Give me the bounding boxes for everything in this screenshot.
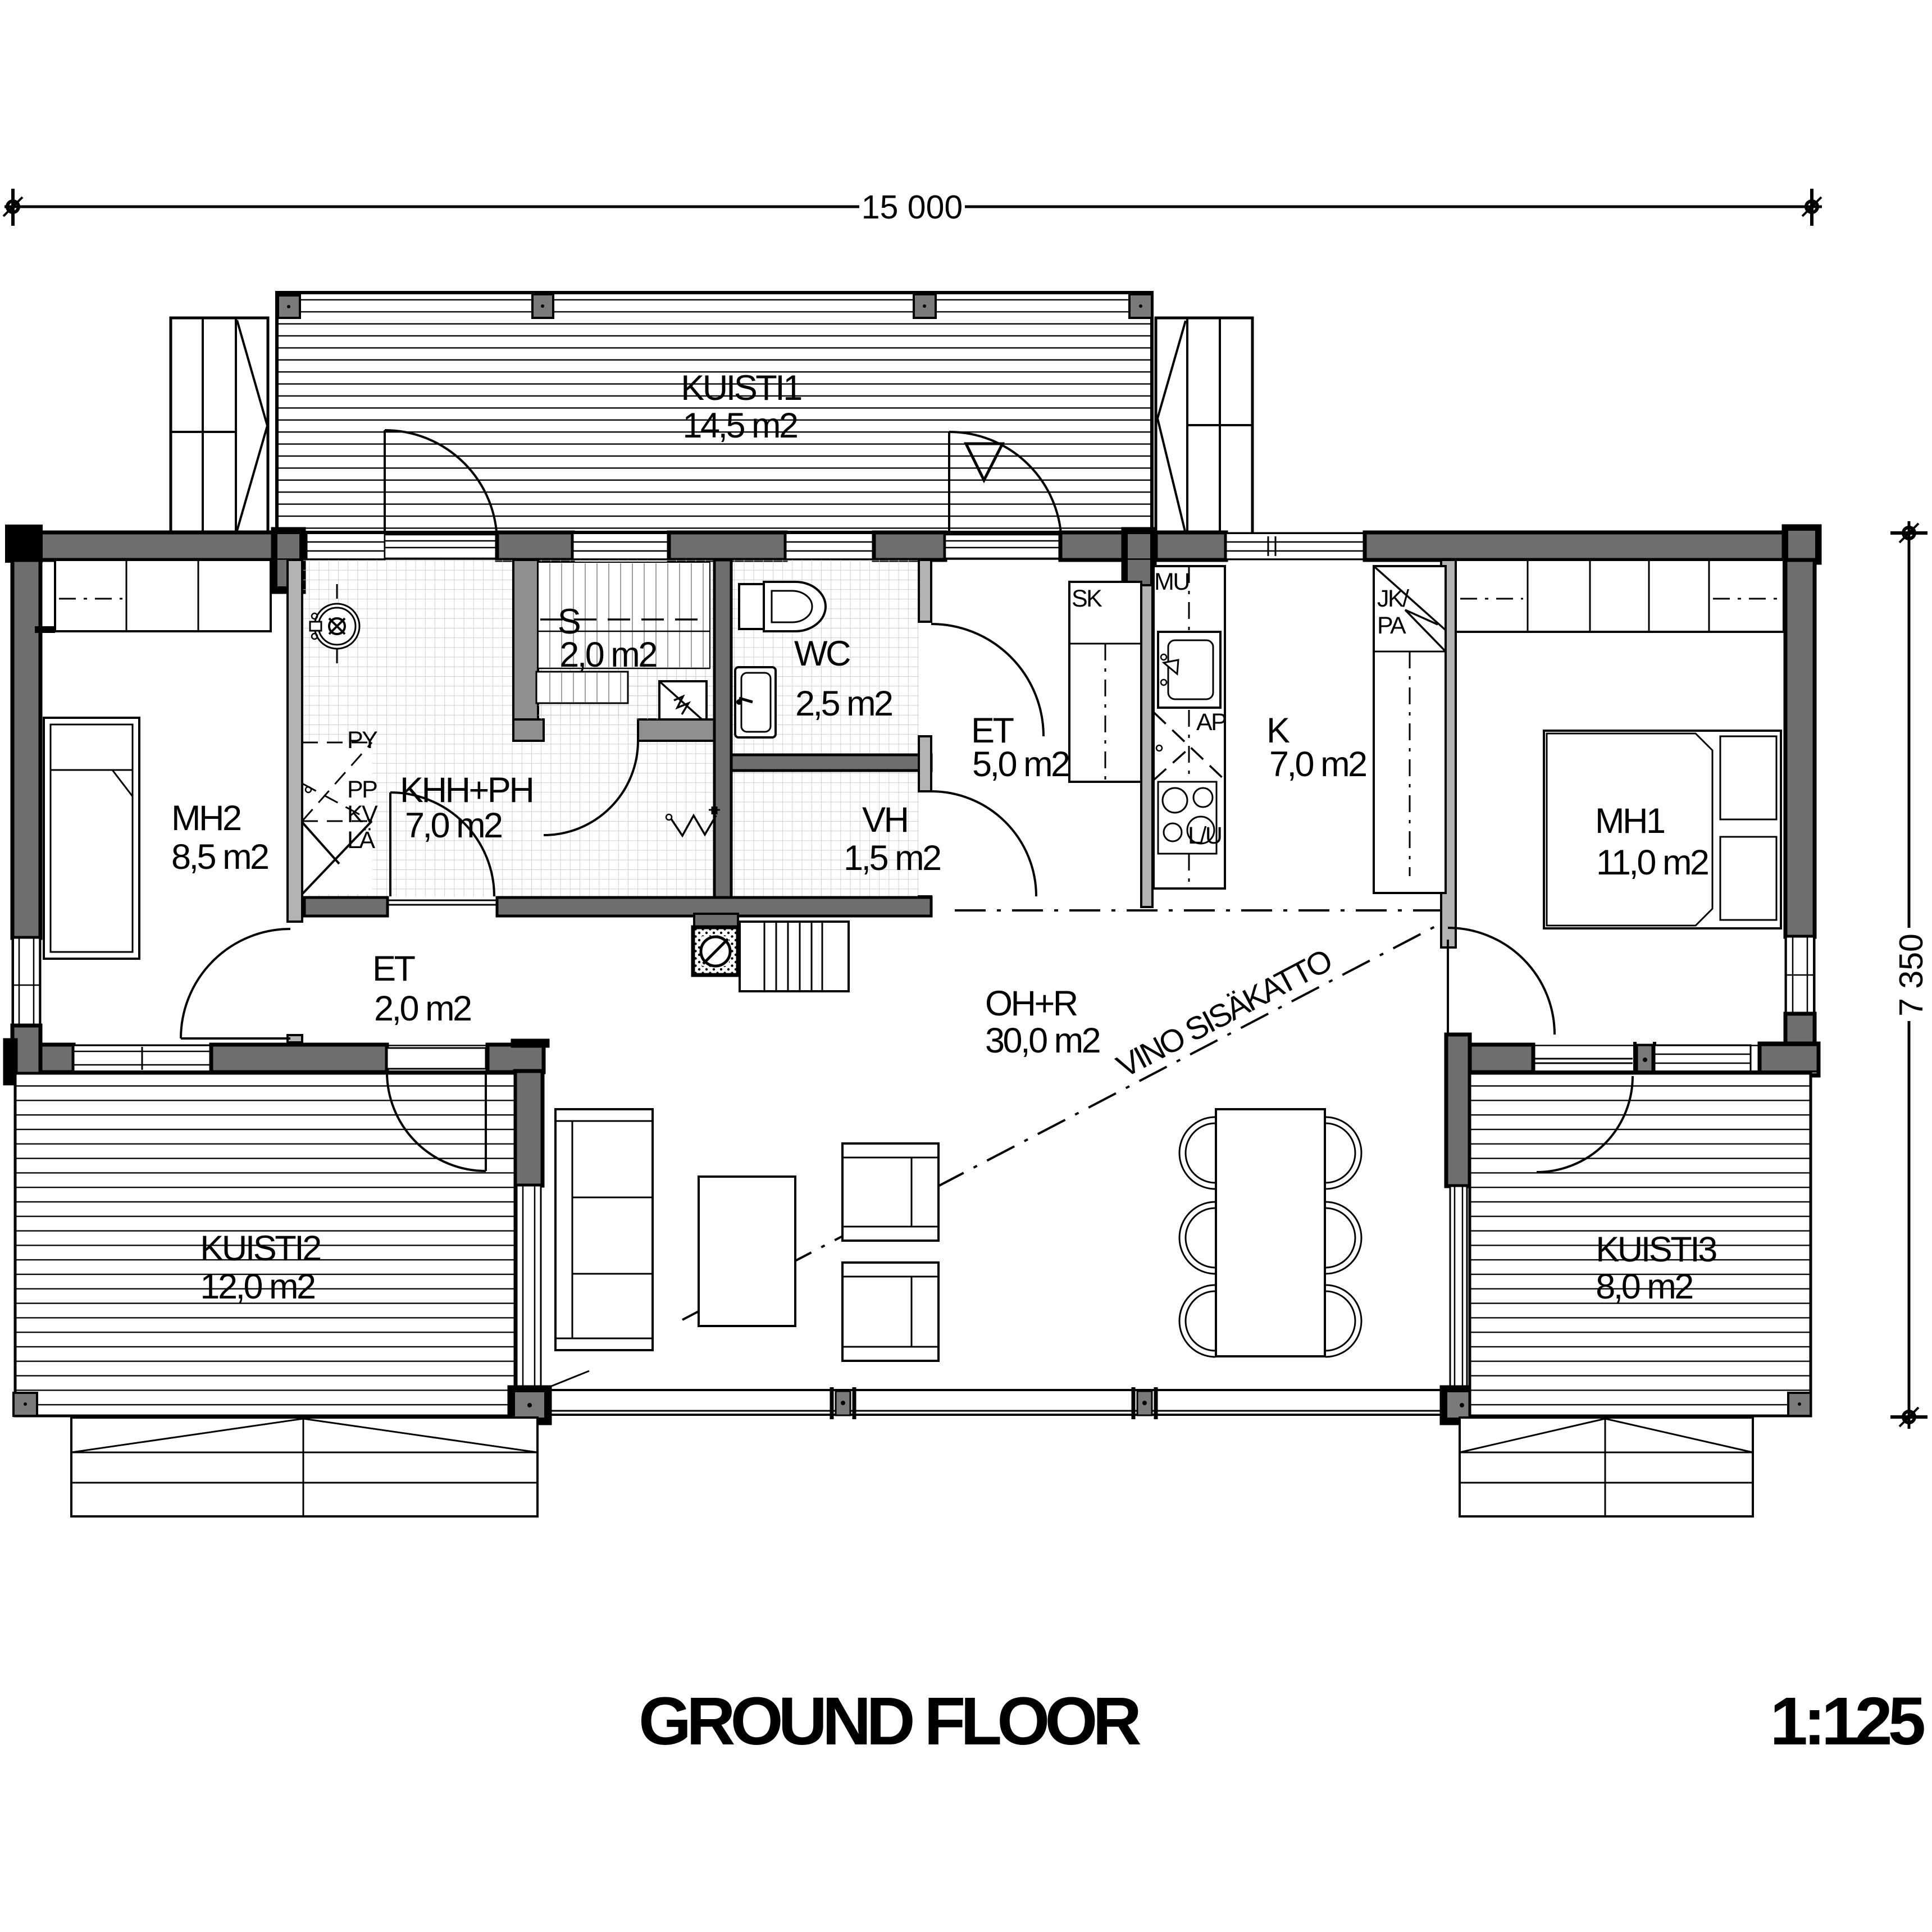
svg-text:VH: VH	[862, 800, 908, 840]
svg-text:5,0 m2: 5,0 m2	[972, 745, 1069, 784]
svg-text:8,5 m2: 8,5 m2	[171, 837, 268, 877]
svg-text:KUISTI1: KUISTI1	[681, 368, 801, 408]
svg-text:2,5 m2: 2,5 m2	[795, 684, 892, 723]
svg-text:PY: PY	[347, 727, 377, 754]
svg-text:12,0 m2: 12,0 m2	[200, 1267, 315, 1306]
svg-text:KUISTI2: KUISTI2	[200, 1229, 320, 1268]
svg-text:2,0 m2: 2,0 m2	[374, 989, 471, 1028]
svg-text:KUISTI3: KUISTI3	[1596, 1230, 1716, 1269]
svg-text:1,5 m2: 1,5 m2	[844, 839, 940, 878]
svg-text:MH1: MH1	[1595, 801, 1664, 841]
svg-text:GROUND FLOOR: GROUND FLOOR	[639, 1683, 1140, 1759]
svg-text:30,0 m2: 30,0 m2	[985, 1021, 1100, 1060]
svg-text:7 350: 7 350	[1893, 933, 1930, 1017]
svg-text:1:125: 1:125	[1770, 1683, 1924, 1759]
svg-text:OH+R: OH+R	[985, 984, 1077, 1023]
svg-text:MU: MU	[1154, 568, 1189, 595]
svg-text:MH2: MH2	[171, 799, 240, 838]
svg-text:7,0 m2: 7,0 m2	[1269, 745, 1366, 784]
svg-text:KV: KV	[347, 801, 378, 828]
svg-text:2,0 m2: 2,0 m2	[559, 635, 656, 675]
svg-text:L/U: L/U	[1188, 822, 1221, 849]
svg-text:AP: AP	[1196, 709, 1226, 736]
svg-text:LÄ: LÄ	[347, 827, 375, 854]
svg-text:14,5 m2: 14,5 m2	[682, 406, 797, 445]
svg-text:11,0 m2: 11,0 m2	[1596, 843, 1708, 882]
svg-text:ET: ET	[372, 949, 416, 988]
svg-text:8,0 m2: 8,0 m2	[1596, 1267, 1692, 1306]
svg-text:KHH+PH: KHH+PH	[400, 771, 532, 810]
svg-text:WC: WC	[794, 634, 850, 673]
svg-text:PA: PA	[1377, 612, 1406, 639]
svg-text:JK/: JK/	[1377, 585, 1409, 612]
svg-text:7,0 m2: 7,0 m2	[405, 806, 502, 845]
svg-text:PP: PP	[347, 776, 377, 803]
svg-text:SK: SK	[1072, 585, 1102, 612]
svg-text:15 000: 15 000	[862, 189, 963, 226]
